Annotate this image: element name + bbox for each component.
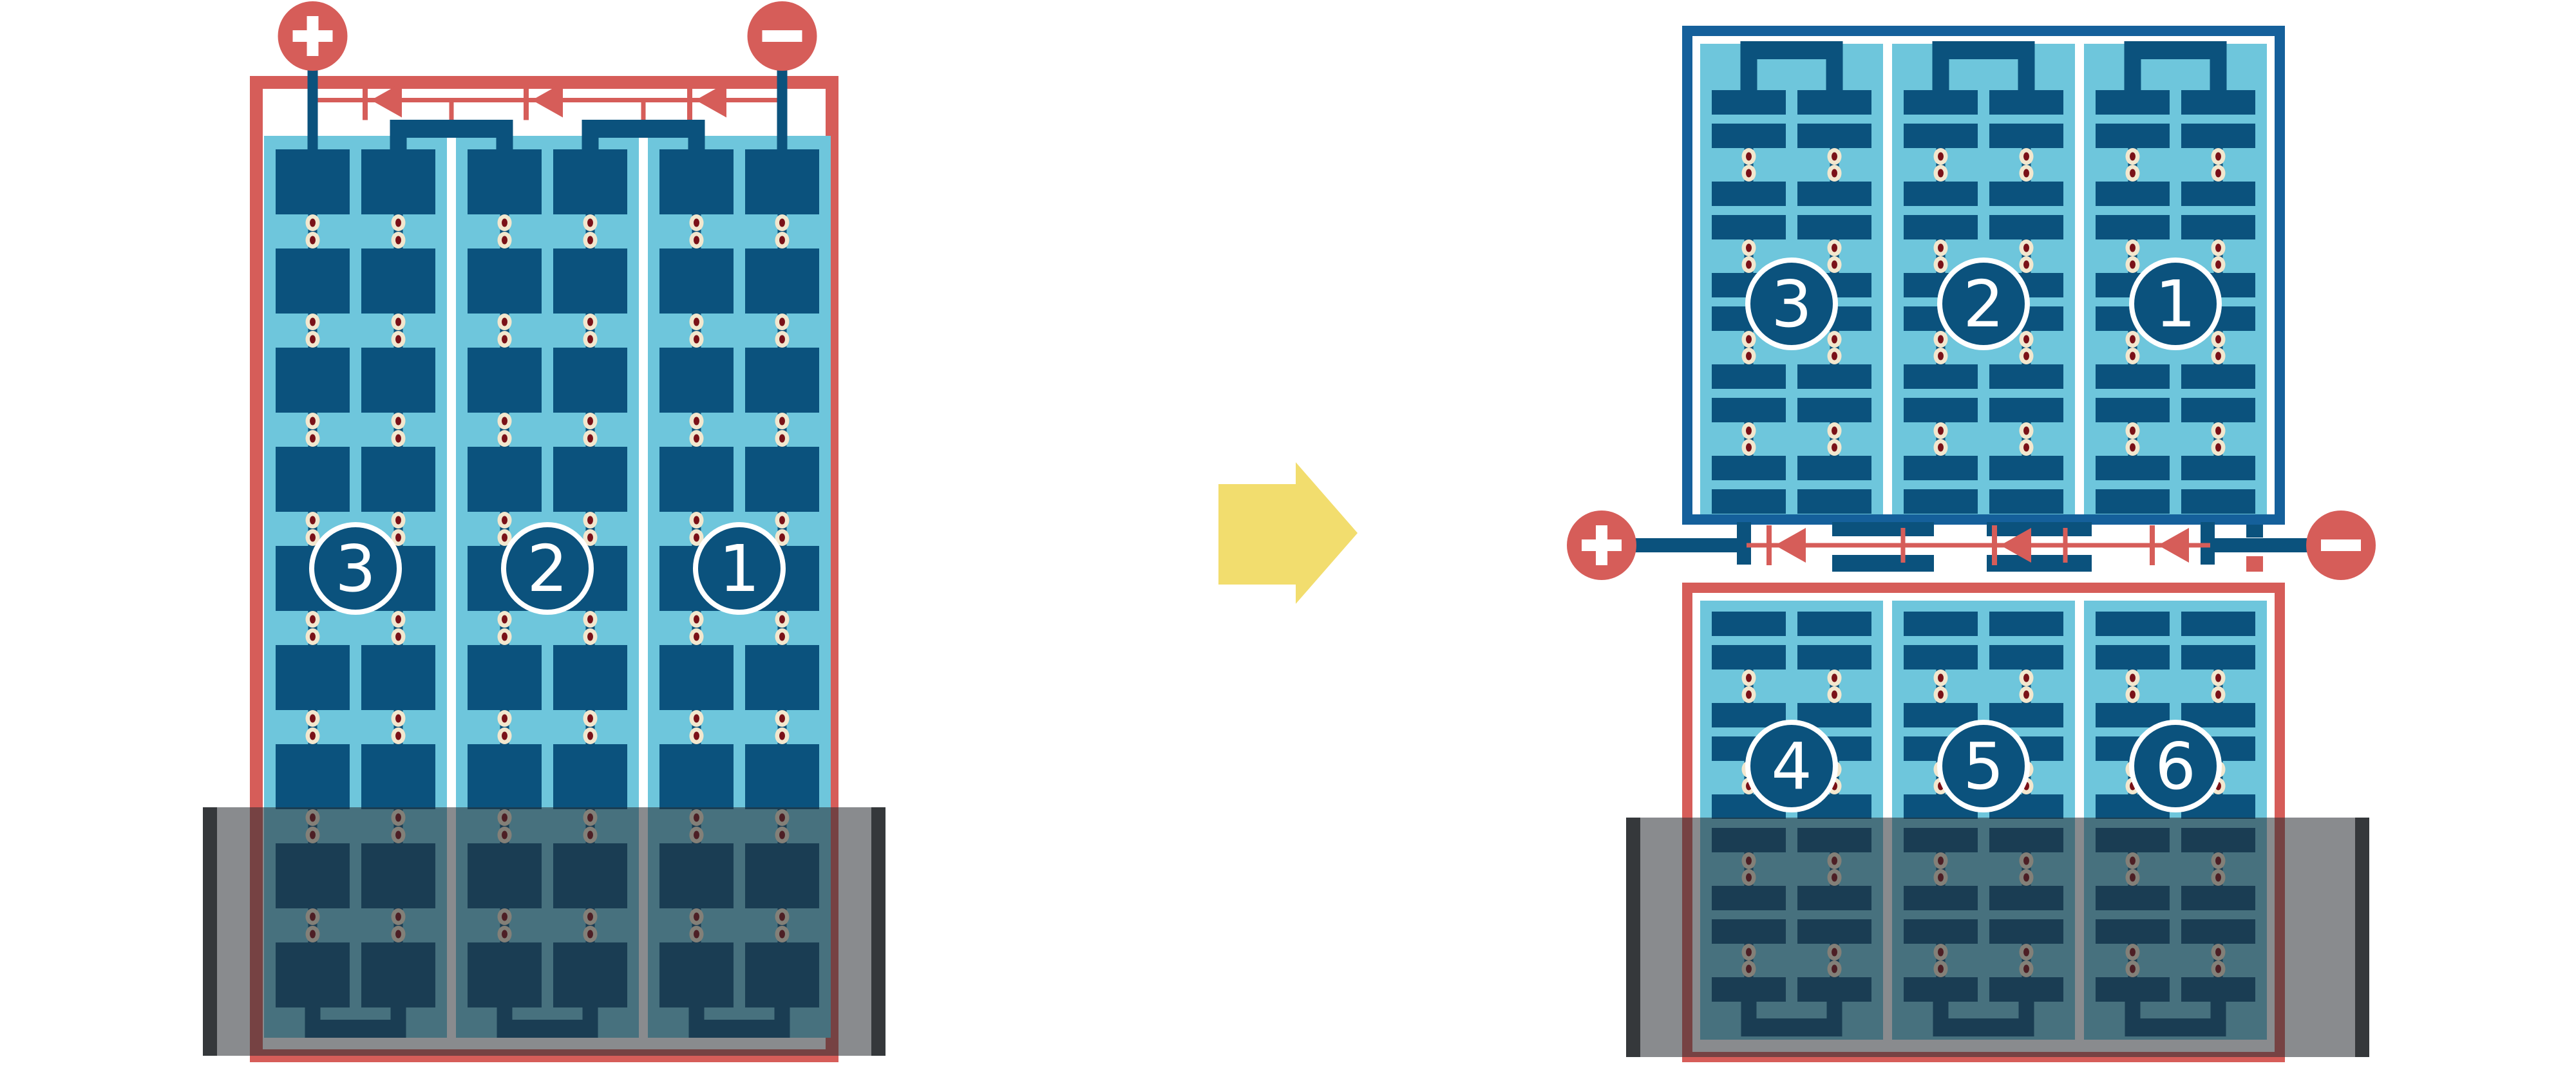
string-jumper-leg xyxy=(2018,59,2035,94)
junction-tab-red xyxy=(2246,556,2263,572)
junction-tab xyxy=(1987,555,2092,572)
solar-half-cell xyxy=(1989,612,2063,636)
solar-half-cell xyxy=(2181,612,2255,636)
diode-triangle xyxy=(2158,528,2189,563)
solar-cell xyxy=(361,447,435,512)
cell-connector-dot-core xyxy=(502,236,507,245)
solar-half-cell xyxy=(2181,124,2255,148)
solar-half-cell xyxy=(2181,182,2255,206)
solar-cell xyxy=(276,248,350,314)
cell-connector-dot-core xyxy=(587,236,593,245)
solar-cell xyxy=(276,447,350,512)
junction-tab xyxy=(1832,555,1934,572)
cell-connector-dot-core xyxy=(395,516,401,525)
bus-tick xyxy=(2063,528,2068,563)
cell-connector-dot-core xyxy=(2215,153,2221,161)
solar-half-cell xyxy=(2181,398,2255,422)
left-string-badge-3: 3 xyxy=(312,525,399,612)
cell-connector-dot-core xyxy=(502,534,507,542)
solar-cell xyxy=(659,149,734,214)
cell-connector-dot-core xyxy=(1938,244,1944,252)
diode-cathode-bar xyxy=(524,80,529,120)
solar-half-cell xyxy=(1904,456,1978,480)
solar-half-cell xyxy=(1712,456,1786,480)
solar-half-cell xyxy=(1712,612,1786,636)
solar-half-cell xyxy=(1989,90,2063,115)
cell-connector-dot-core xyxy=(1746,674,1752,682)
cell-connector-dot-core xyxy=(395,534,401,542)
solar-half-cell xyxy=(1989,215,2063,239)
pv-module-wiring-diagram: 3 2 1 xyxy=(0,0,2576,1068)
cell-connector-dot-core xyxy=(694,417,699,426)
solar-cell xyxy=(468,248,542,314)
solar-cell xyxy=(659,248,734,314)
solar-half-cell xyxy=(1712,90,1786,115)
solar-cell xyxy=(659,645,734,710)
cell-connector-dot-core xyxy=(395,318,401,326)
cell-connector-dot-core xyxy=(2130,261,2136,269)
minus-icon xyxy=(2321,539,2361,551)
solar-half-cell xyxy=(1797,364,1871,389)
solar-half-cell xyxy=(1989,182,2063,206)
right-module: 3 2 1 xyxy=(1567,31,2376,1057)
cell-connector-dot-core xyxy=(1832,444,1837,452)
cell-connector-dot-core xyxy=(779,534,785,542)
cell-connector-dot-core xyxy=(2130,352,2136,361)
cell-connector-dot-core xyxy=(2130,674,2136,682)
solar-half-cell xyxy=(1712,364,1786,389)
cell-connector-dot-core xyxy=(2215,244,2221,252)
solar-half-cell xyxy=(1797,489,1871,514)
cell-connector-dot-core xyxy=(1832,674,1837,682)
cell-connector-dot-core xyxy=(587,534,593,542)
cell-connector-dot-core xyxy=(2215,674,2221,682)
cell-connector-dot-core xyxy=(779,615,785,624)
left-string-badge-2: 2 xyxy=(504,525,591,612)
solar-half-cell xyxy=(2096,612,2170,636)
cell-connector-dot-core xyxy=(587,335,593,344)
cell-connector-dot-core xyxy=(1746,153,1752,161)
shade-edge-bar xyxy=(203,807,217,1056)
solar-half-cell xyxy=(1797,90,1871,115)
string-jumper-leg xyxy=(1826,59,1843,94)
cell-connector-dot-core xyxy=(395,417,401,426)
cell-connector-dot-core xyxy=(694,732,699,740)
cell-connector-dot-core xyxy=(1746,427,1752,435)
solar-cell xyxy=(276,744,350,809)
diode-cathode-bar xyxy=(687,80,692,120)
cell-connector-dot-core xyxy=(502,633,507,641)
cell-connector-dot-core xyxy=(779,633,785,641)
solar-half-cell xyxy=(1989,364,2063,389)
cell-connector-dot-core xyxy=(2023,691,2029,699)
cell-connector-dot-core xyxy=(310,417,316,426)
shade-overlay xyxy=(203,807,885,1056)
cell-connector-dot-core xyxy=(502,516,507,525)
cell-connector-dot-core xyxy=(2023,169,2029,178)
string-number: 1 xyxy=(719,531,760,606)
solar-half-cell xyxy=(2181,456,2255,480)
string-number: 1 xyxy=(2155,267,2196,342)
solar-half-cell xyxy=(2096,182,2170,206)
cell-connector-dot-core xyxy=(779,236,785,245)
cell-connector-dot-core xyxy=(502,715,507,723)
cell-connector-dot-core xyxy=(694,633,699,641)
string-jumper-bar xyxy=(1741,41,1843,59)
solar-cell xyxy=(745,645,819,710)
cell-connector-dot-core xyxy=(2130,335,2136,344)
solar-cell xyxy=(553,447,627,512)
cell-connector-dot-core xyxy=(395,715,401,723)
solar-half-cell xyxy=(1797,215,1871,239)
solar-half-cell xyxy=(1904,489,1978,514)
solar-half-cell xyxy=(1904,124,1978,148)
cell-connector-dot-core xyxy=(1938,691,1944,699)
junction-tab xyxy=(1987,522,2092,536)
left-bus-drop xyxy=(450,102,454,121)
string-jumper-leg xyxy=(2125,59,2141,94)
solar-half-cell xyxy=(1797,398,1871,422)
solar-half-cell xyxy=(2096,645,2170,670)
cell-connector-dot-core xyxy=(1832,153,1837,161)
solar-cell xyxy=(468,645,542,710)
right-diode-bus xyxy=(1747,543,2210,548)
cell-connector-dot-core xyxy=(2130,427,2136,435)
cell-connector-dot-core xyxy=(694,335,699,344)
solar-half-cell xyxy=(2181,90,2255,115)
cell-connector-dot-core xyxy=(310,534,316,542)
cell-connector-dot-core xyxy=(1832,352,1837,361)
solar-half-cell xyxy=(2181,215,2255,239)
cell-connector-dot-core xyxy=(1938,674,1944,682)
cell-connector-dot-core xyxy=(1938,427,1944,435)
cell-connector-dot-core xyxy=(1938,444,1944,452)
cell-connector-dot-core xyxy=(2215,691,2221,699)
cell-connector-dot-core xyxy=(395,236,401,245)
solar-half-cell xyxy=(1797,612,1871,636)
shade-edge-bar xyxy=(871,807,885,1056)
cell-connector-dot-core xyxy=(1938,261,1944,269)
cell-connector-dot-core xyxy=(587,435,593,443)
cell-connector-dot-core xyxy=(2023,427,2029,435)
string-jumper-bar xyxy=(582,120,705,138)
cell-connector-dot-core xyxy=(310,732,316,740)
cell-connector-dot-core xyxy=(1832,335,1837,344)
solar-cell xyxy=(745,348,819,413)
cell-connector-dot-core xyxy=(587,732,593,740)
cell-connector-dot-core xyxy=(779,715,785,723)
solar-half-cell xyxy=(1904,215,1978,239)
cell-connector-dot-core xyxy=(395,335,401,344)
cell-connector-dot-core xyxy=(694,318,699,326)
plus-terminal xyxy=(278,1,348,71)
solar-half-cell xyxy=(1712,215,1786,239)
cell-connector-dot-core xyxy=(587,219,593,227)
solar-half-cell xyxy=(1989,489,2063,514)
cell-connector-dot-core xyxy=(1938,335,1944,344)
string-number: 5 xyxy=(1963,729,2004,804)
plus-terminal xyxy=(1567,511,1636,580)
cell-connector-dot-core xyxy=(1746,244,1752,252)
cell-connector-dot-core xyxy=(1938,169,1944,178)
solar-cell xyxy=(745,744,819,809)
cell-connector-dot-core xyxy=(779,417,785,426)
cell-connector-dot-core xyxy=(2130,244,2136,252)
cell-connector-dot-core xyxy=(502,615,507,624)
right-bottom-badge-5: 5 xyxy=(1940,722,2027,810)
diode-triangle xyxy=(1775,528,1806,563)
cell-connector-dot-core xyxy=(395,435,401,443)
solar-half-cell xyxy=(2181,489,2255,514)
cell-connector-dot-core xyxy=(2023,444,2029,452)
solar-cell xyxy=(659,348,734,413)
cell-connector-dot-core xyxy=(2130,153,2136,161)
solar-cell xyxy=(468,149,542,214)
cell-connector-dot-core xyxy=(2215,335,2221,344)
cell-connector-dot-core xyxy=(587,417,593,426)
solar-half-cell xyxy=(1904,182,1978,206)
string-number: 3 xyxy=(335,531,376,606)
solar-half-cell xyxy=(1904,398,1978,422)
cell-connector-dot-core xyxy=(2215,169,2221,178)
solar-cell xyxy=(659,744,734,809)
right-bottom-badge-6: 6 xyxy=(2132,722,2219,810)
solar-cell xyxy=(659,447,734,512)
cell-connector-dot-core xyxy=(2130,444,2136,452)
cell-connector-dot-core xyxy=(310,335,316,344)
solar-half-cell xyxy=(1712,398,1786,422)
cell-connector-dot-core xyxy=(395,732,401,740)
cell-connector-dot-core xyxy=(502,435,507,443)
cell-connector-dot-core xyxy=(310,219,316,227)
cell-connector-dot-core xyxy=(587,318,593,326)
cell-connector-dot-core xyxy=(779,732,785,740)
solar-half-cell xyxy=(2096,456,2170,480)
cell-connector-dot-core xyxy=(2023,674,2029,682)
cell-connector-dot-core xyxy=(694,219,699,227)
solar-half-cell xyxy=(2096,124,2170,148)
solar-cell xyxy=(361,645,435,710)
solar-half-cell xyxy=(1797,182,1871,206)
cell-connector-dot-core xyxy=(502,219,507,227)
right-top-badge-2: 2 xyxy=(1940,260,2027,348)
cell-connector-dot-core xyxy=(1746,335,1752,344)
solar-half-cell xyxy=(1712,124,1786,148)
shade-edge-bar xyxy=(2355,818,2369,1057)
solar-cell xyxy=(745,447,819,512)
solar-cell xyxy=(745,248,819,314)
cell-connector-dot-core xyxy=(694,715,699,723)
solar-half-cell xyxy=(1904,364,1978,389)
cell-connector-dot-core xyxy=(694,236,699,245)
cell-connector-dot-core xyxy=(694,615,699,624)
cell-connector-dot-core xyxy=(587,615,593,624)
right-top-half-panel: 3 2 1 xyxy=(1687,31,2280,520)
cell-connector-dot-core xyxy=(395,615,401,624)
cell-connector-dot-core xyxy=(310,318,316,326)
solar-half-cell xyxy=(2096,398,2170,422)
cell-connector-dot-core xyxy=(779,335,785,344)
cell-connector-dot-core xyxy=(1746,444,1752,452)
cell-connector-dot-core xyxy=(694,435,699,443)
cell-connector-dot-core xyxy=(310,633,316,641)
cell-connector-dot-core xyxy=(2023,153,2029,161)
cell-connector-dot-core xyxy=(395,633,401,641)
cell-connector-dot-core xyxy=(2023,244,2029,252)
solar-half-cell xyxy=(1989,456,2063,480)
cell-connector-dot-core xyxy=(2130,169,2136,178)
cell-connector-dot-core xyxy=(310,435,316,443)
solar-half-cell xyxy=(2181,364,2255,389)
solar-cell xyxy=(553,348,627,413)
left-string-badge-1: 1 xyxy=(696,525,783,612)
string-number: 2 xyxy=(527,531,568,606)
diode-cathode-bar xyxy=(2150,525,2155,565)
cell-connector-dot-core xyxy=(502,318,507,326)
string-number: 3 xyxy=(1771,267,1812,342)
solar-half-cell xyxy=(1904,90,1978,115)
cell-connector-dot-core xyxy=(779,219,785,227)
diode-cathode-bar xyxy=(363,80,368,120)
cell-connector-dot-core xyxy=(694,516,699,525)
solar-half-cell xyxy=(1712,182,1786,206)
cell-connector-dot-core xyxy=(1746,352,1752,361)
minus-terminal xyxy=(2306,511,2376,580)
cell-connector-dot-core xyxy=(779,435,785,443)
positive-lead-bar xyxy=(1633,538,1738,552)
cell-connector-dot-core xyxy=(587,633,593,641)
solar-half-cell xyxy=(1797,645,1871,670)
cell-connector-dot-core xyxy=(1832,169,1837,178)
cell-connector-dot-core xyxy=(587,715,593,723)
solar-cell xyxy=(553,744,627,809)
cell-connector-dot-core xyxy=(587,516,593,525)
solar-half-cell xyxy=(1712,489,1786,514)
cell-connector-dot-core xyxy=(1938,352,1944,361)
junction-tab xyxy=(1832,522,1934,536)
solar-half-cell xyxy=(1904,612,1978,636)
string-jumper-bar xyxy=(1933,41,2035,59)
shade-edge-bar xyxy=(1626,818,1640,1057)
cell-connector-dot-core xyxy=(2215,444,2221,452)
solar-half-cell xyxy=(2096,489,2170,514)
string-jumper-leg xyxy=(1741,59,1757,94)
solar-half-cell xyxy=(1797,124,1871,148)
right-top-badge-1: 1 xyxy=(2132,260,2219,348)
cell-connector-dot-core xyxy=(2215,427,2221,435)
shade-overlay xyxy=(1626,818,2369,1057)
solar-half-cell xyxy=(1712,645,1786,670)
minus-icon xyxy=(762,30,802,42)
cell-connector-dot-core xyxy=(1832,427,1837,435)
diode-cathode-bar xyxy=(1992,525,1997,565)
cell-connector-dot-core xyxy=(502,417,507,426)
string-divider xyxy=(1883,44,1892,514)
cell-connector-dot-core xyxy=(1746,169,1752,178)
right-bottom-badge-4: 4 xyxy=(1748,722,1835,810)
string-number: 2 xyxy=(1963,267,2004,342)
solar-cell xyxy=(468,744,542,809)
cell-connector-dot-core xyxy=(1938,153,1944,161)
string-jumper-bar xyxy=(390,120,513,138)
solar-cell xyxy=(276,645,350,710)
cell-connector-dot-core xyxy=(2023,261,2029,269)
cell-connector-dot-core xyxy=(1832,244,1837,252)
right-arrow-icon xyxy=(1218,462,1358,604)
solar-half-cell xyxy=(1797,456,1871,480)
string-number: 4 xyxy=(1771,729,1812,804)
string-jumper-leg xyxy=(1933,59,1949,94)
cell-connector-dot-core xyxy=(1832,261,1837,269)
bus-tick xyxy=(1901,528,1906,563)
solar-cell xyxy=(468,348,542,413)
solar-half-cell xyxy=(2096,215,2170,239)
solar-half-cell xyxy=(1989,124,2063,148)
junction-tab xyxy=(2246,525,2263,538)
cell-connector-dot-core xyxy=(2023,335,2029,344)
cell-connector-dot-core xyxy=(779,516,785,525)
string-number: 6 xyxy=(2155,729,2196,804)
string-jumper-bar xyxy=(2125,41,2227,59)
solar-half-cell xyxy=(1989,398,2063,422)
cell-connector-dot-core xyxy=(310,615,316,624)
solar-half-cell xyxy=(1904,645,1978,670)
string-jumper-leg xyxy=(2210,59,2227,94)
solar-half-cell xyxy=(2181,645,2255,670)
solar-cell xyxy=(276,348,350,413)
cell-connector-dot-core xyxy=(502,732,507,740)
solar-cell xyxy=(361,348,435,413)
solar-half-cell xyxy=(1989,645,2063,670)
solar-cell xyxy=(553,645,627,710)
cell-connector-dot-core xyxy=(1832,691,1837,699)
cell-connector-dot-core xyxy=(2130,691,2136,699)
solar-half-cell xyxy=(2096,364,2170,389)
cell-connector-dot-core xyxy=(310,516,316,525)
solar-half-cell xyxy=(2096,90,2170,115)
left-bus-drop xyxy=(641,102,646,121)
solar-cell xyxy=(553,149,627,214)
left-module: 3 2 1 xyxy=(203,1,885,1056)
cell-connector-dot-core xyxy=(2215,261,2221,269)
cell-connector-dot-core xyxy=(1746,261,1752,269)
cell-connector-dot-core xyxy=(395,219,401,227)
solar-cell xyxy=(361,248,435,314)
cell-connector-dot-core xyxy=(779,318,785,326)
diagram-stage: 3 2 1 xyxy=(0,0,2576,1068)
diode-cathode-bar xyxy=(1766,525,1772,565)
solar-cell xyxy=(468,447,542,512)
cell-connector-dot-core xyxy=(310,715,316,723)
right-top-badge-3: 3 xyxy=(1748,260,1835,348)
cell-connector-dot-core xyxy=(694,534,699,542)
cell-connector-dot-core xyxy=(2023,352,2029,361)
minus-terminal xyxy=(748,1,817,71)
cell-connector-dot-core xyxy=(310,236,316,245)
string-divider xyxy=(2075,44,2084,514)
solar-cell xyxy=(361,744,435,809)
cell-connector-dot-core xyxy=(2215,352,2221,361)
cell-connector-dot-core xyxy=(502,335,507,344)
solar-cell xyxy=(361,149,435,214)
cell-connector-dot-core xyxy=(1746,691,1752,699)
solar-cell xyxy=(553,248,627,314)
